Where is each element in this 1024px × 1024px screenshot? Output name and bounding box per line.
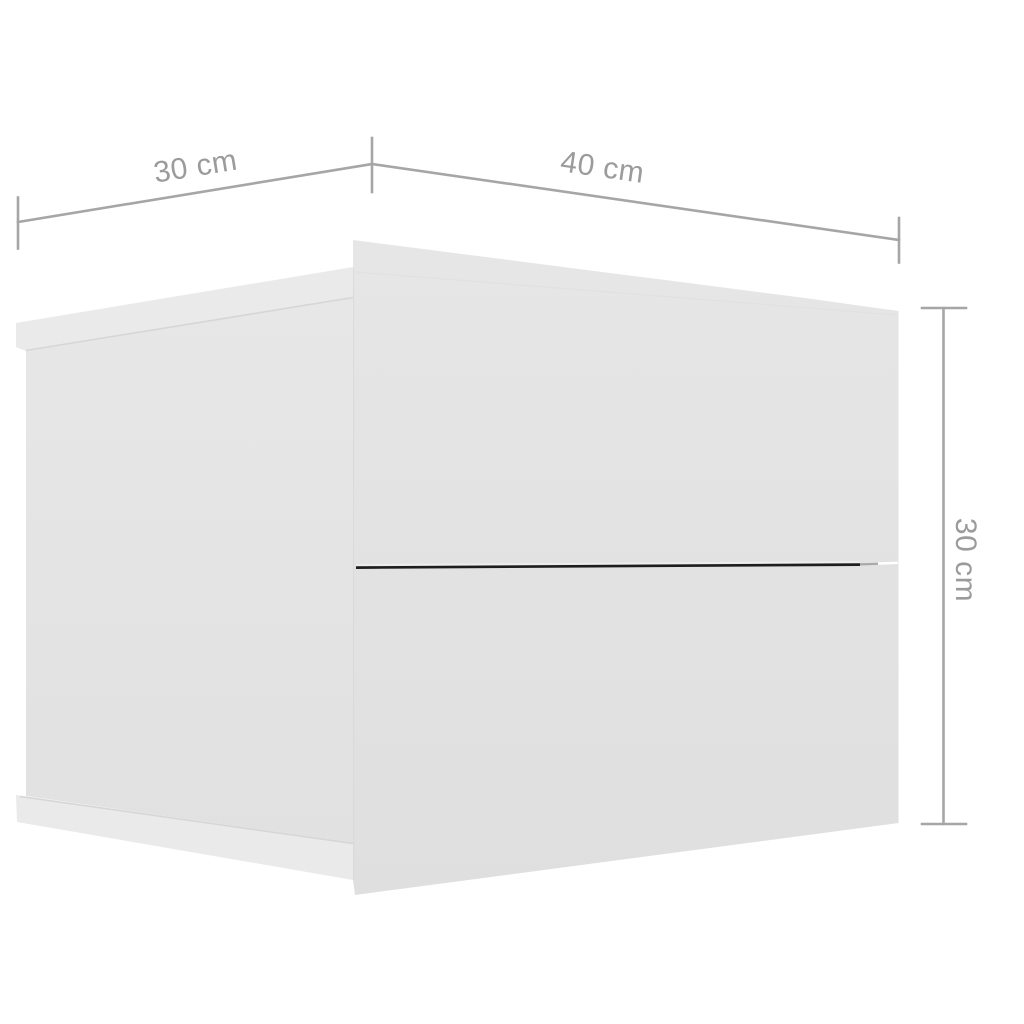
dimension-diagram-canvas: 30 cm 40 cm 30 cm [0,0,1024,1024]
drawer-gap-line-fade [860,564,878,565]
dimension-depth: 30 cm [18,138,372,249]
dimension-width: 40 cm [372,145,899,262]
product-dimension-diagram: 30 cm 40 cm 30 cm [0,0,1024,1024]
dimension-depth-label: 30 cm [151,144,239,190]
cabinet-side-panel [26,298,353,843]
dimension-width-label: 40 cm [558,145,646,190]
dimension-height: 30 cm [922,308,982,824]
cabinet-illustration [16,240,899,895]
drawer-gap-line-end-highlight [878,563,898,564]
dimension-height-label: 30 cm [949,518,982,602]
